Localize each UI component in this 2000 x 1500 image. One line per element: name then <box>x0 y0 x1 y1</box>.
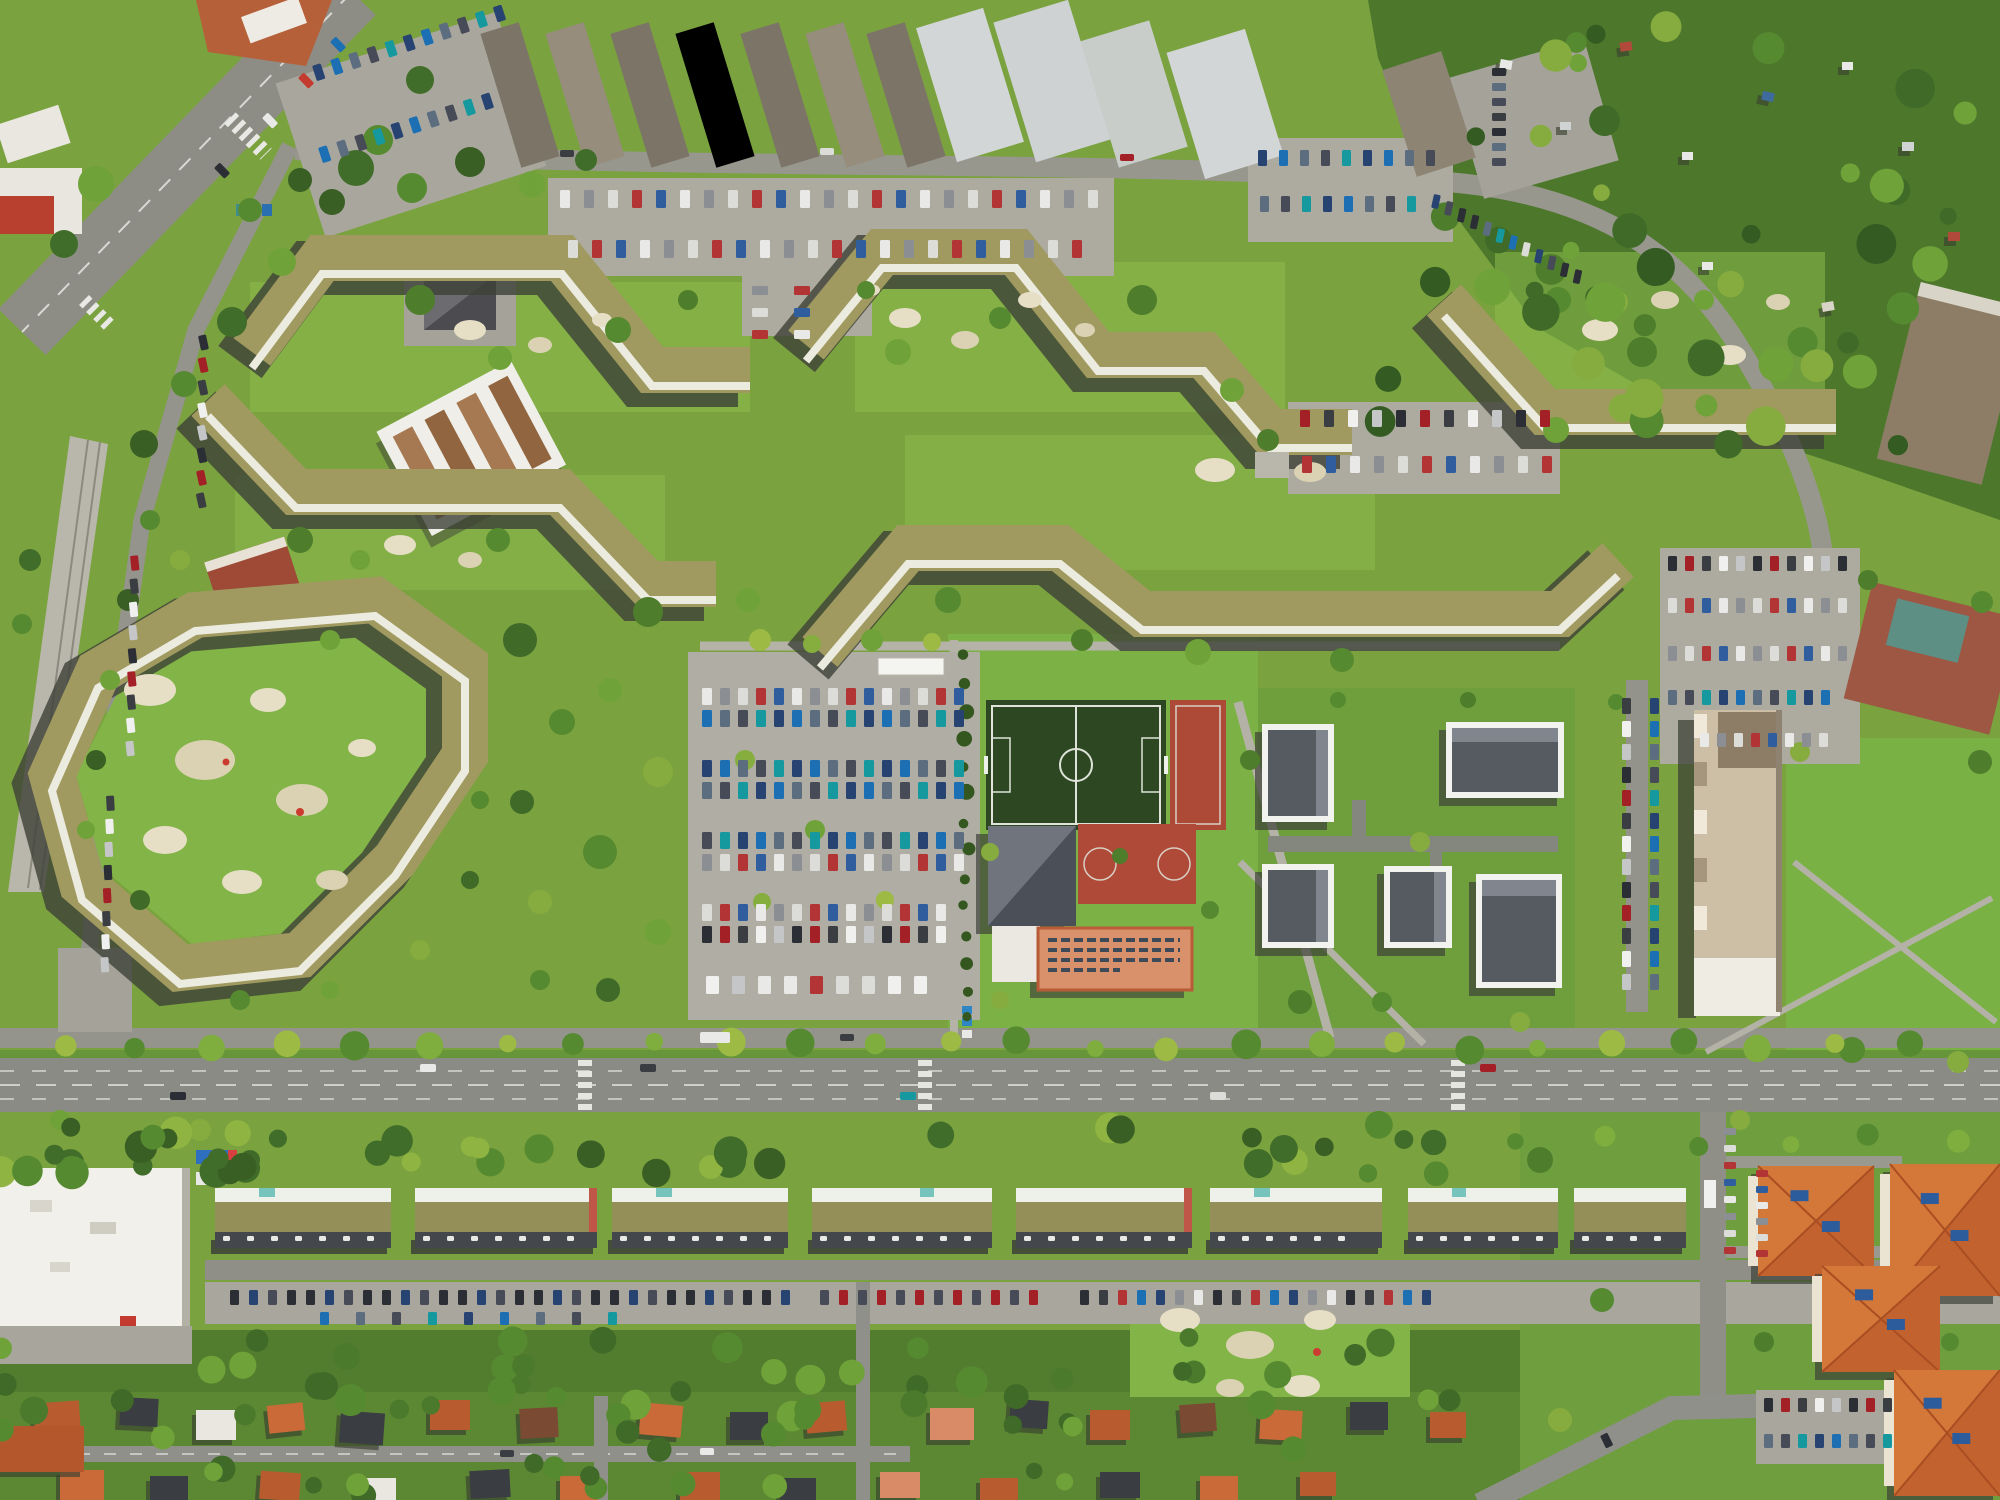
car <box>743 1290 752 1305</box>
avenue-tree-south <box>1242 1128 1262 1148</box>
estate-street <box>205 1260 2000 1280</box>
car <box>1702 690 1711 705</box>
house <box>259 1471 301 1500</box>
car <box>1024 240 1034 258</box>
car <box>1000 240 1010 258</box>
tree <box>528 890 552 914</box>
car <box>1717 733 1726 747</box>
parked-cars <box>794 286 810 339</box>
tree <box>643 757 673 787</box>
car <box>363 1290 372 1305</box>
car <box>756 904 766 921</box>
car <box>1756 1186 1768 1193</box>
tree <box>320 630 340 650</box>
solar-panel <box>1924 1398 1942 1409</box>
avenue-tree-north <box>198 1035 224 1061</box>
car <box>127 694 137 710</box>
tree <box>1220 378 1244 402</box>
car <box>954 782 964 799</box>
car <box>1787 556 1796 571</box>
tree <box>885 339 911 365</box>
car <box>1724 1145 1736 1152</box>
avenue-tree-south <box>402 1153 421 1172</box>
house-district-tree <box>305 1477 322 1494</box>
allotment-tree <box>1759 347 1794 382</box>
car <box>1724 1230 1736 1237</box>
car <box>954 832 964 849</box>
garden-tree <box>956 1366 988 1398</box>
avenue-tree-north <box>1384 1032 1405 1053</box>
tree <box>1527 1147 1553 1173</box>
car <box>572 1312 581 1325</box>
car <box>1622 928 1631 944</box>
car <box>740 1236 747 1241</box>
tree <box>1257 429 1279 451</box>
car <box>968 190 978 208</box>
avenue-tree-south <box>577 1140 605 1168</box>
garden-tree <box>234 1404 256 1426</box>
car <box>918 688 928 705</box>
car <box>1606 1236 1613 1241</box>
car <box>103 888 112 903</box>
sand-patch <box>250 688 286 712</box>
car <box>864 904 874 921</box>
avenue-tree-north <box>1231 1030 1261 1060</box>
tree <box>406 66 434 94</box>
allotment-tree <box>1753 32 1785 64</box>
car <box>271 1236 278 1241</box>
car <box>720 904 730 921</box>
car <box>553 1290 562 1305</box>
car <box>1650 767 1659 783</box>
car <box>810 854 820 871</box>
car <box>1279 150 1288 166</box>
tree <box>171 371 197 397</box>
car <box>1048 1236 1055 1241</box>
garden-tree <box>1173 1362 1192 1381</box>
car <box>688 240 698 258</box>
car <box>1838 598 1847 613</box>
car <box>882 688 892 705</box>
tree <box>923 633 941 651</box>
car <box>720 760 730 777</box>
car <box>824 190 834 208</box>
car <box>1719 646 1728 661</box>
avenue-tree-north <box>1743 1035 1771 1063</box>
car <box>781 1290 790 1305</box>
supermarket <box>0 1168 186 1326</box>
moving-car <box>1120 154 1134 161</box>
car <box>1342 150 1351 166</box>
tree <box>321 981 339 999</box>
car <box>706 976 719 994</box>
tree <box>50 230 78 258</box>
car <box>130 555 140 571</box>
tree <box>461 871 479 889</box>
car <box>856 240 866 258</box>
car <box>367 1236 374 1241</box>
car <box>774 854 784 871</box>
allotment-tree <box>1837 332 1859 354</box>
parked-cars <box>1258 150 1435 166</box>
car <box>792 854 802 871</box>
parked-cars <box>702 760 964 777</box>
tree <box>77 821 95 839</box>
car <box>792 710 802 727</box>
car <box>620 1236 627 1241</box>
avenue-tree-south <box>12 1156 43 1187</box>
car <box>102 911 111 926</box>
car <box>976 240 986 258</box>
car <box>1804 598 1813 613</box>
car <box>877 1290 886 1305</box>
west-building-red-roof <box>0 196 54 234</box>
car <box>1622 859 1631 875</box>
car <box>720 782 730 799</box>
moving-car <box>420 1064 436 1072</box>
car <box>1492 143 1506 151</box>
car <box>794 308 810 317</box>
east-lawn <box>1786 738 2000 1072</box>
avenue-tree-south <box>1107 1115 1135 1143</box>
allotment-tree <box>1801 349 1834 382</box>
avenue-tree-south <box>1244 1149 1273 1178</box>
car <box>1785 733 1794 747</box>
house-district-tree <box>616 1420 639 1443</box>
avenue-tree-south <box>269 1130 287 1148</box>
car <box>1832 1434 1841 1448</box>
car <box>828 904 838 921</box>
parked-cars <box>702 710 964 727</box>
parked-vans <box>706 976 927 994</box>
car <box>928 240 938 258</box>
car <box>1494 456 1504 473</box>
car <box>1403 1290 1412 1305</box>
car <box>1753 598 1762 613</box>
sand-patch <box>316 870 348 890</box>
car <box>784 976 797 994</box>
avenue-tree-south <box>61 1118 80 1137</box>
sand-patch <box>1582 319 1618 341</box>
sand-patch <box>384 535 416 555</box>
car <box>944 190 954 208</box>
car <box>1302 456 1312 473</box>
car <box>1072 1236 1079 1241</box>
house <box>1090 1410 1130 1440</box>
car <box>758 976 771 994</box>
car <box>1024 1236 1031 1241</box>
car <box>702 688 712 705</box>
car <box>862 976 875 994</box>
car <box>756 688 766 705</box>
car <box>127 671 137 687</box>
car <box>1700 733 1709 747</box>
car <box>1324 410 1334 427</box>
house <box>1179 1403 1217 1433</box>
car <box>1798 1398 1807 1412</box>
avenue-tree-south <box>524 1134 553 1163</box>
car <box>1321 150 1330 166</box>
tree <box>130 430 158 458</box>
parked-cars <box>752 286 768 339</box>
house-district-tree <box>647 1437 671 1461</box>
car <box>1702 598 1711 613</box>
campus-corridor <box>1352 800 1366 840</box>
car <box>1260 196 1269 212</box>
car <box>764 1236 771 1241</box>
car <box>738 710 748 727</box>
car <box>268 1290 277 1305</box>
car <box>1770 598 1779 613</box>
car <box>810 904 820 921</box>
car <box>792 760 802 777</box>
car <box>828 782 838 799</box>
car <box>846 710 856 727</box>
allotment-tree <box>1563 242 1580 259</box>
allotment-tree <box>1586 25 1605 44</box>
car <box>1804 556 1813 571</box>
garden-tree <box>229 1352 256 1379</box>
car <box>776 190 786 208</box>
solar-panel <box>1921 1193 1939 1204</box>
car <box>918 926 928 943</box>
sand-patch <box>1226 1331 1274 1359</box>
car <box>952 240 962 258</box>
car <box>792 832 802 849</box>
garden-tree <box>422 1396 440 1414</box>
car <box>644 1236 651 1241</box>
car <box>720 832 730 849</box>
car <box>882 926 892 943</box>
car <box>738 782 748 799</box>
car <box>882 832 892 849</box>
car <box>1622 882 1631 898</box>
house <box>1100 1472 1140 1498</box>
car <box>1536 1236 1543 1241</box>
car <box>792 688 802 705</box>
playground-equipment <box>1313 1348 1321 1356</box>
sand-patch <box>951 331 979 349</box>
hedge-bush <box>962 1012 971 1021</box>
car <box>918 832 928 849</box>
school-block-roof-light <box>1316 730 1328 816</box>
car <box>1326 456 1336 473</box>
car <box>1650 882 1659 898</box>
sand-patch <box>458 552 482 568</box>
dumpster <box>262 204 272 216</box>
tree <box>678 290 698 310</box>
car <box>1270 1290 1279 1305</box>
car <box>1650 928 1659 944</box>
car <box>900 832 910 849</box>
car <box>1802 733 1811 747</box>
avenue-tree-north <box>1825 1034 1844 1053</box>
garden-shed <box>1619 41 1632 52</box>
car <box>900 904 910 921</box>
car <box>1338 1236 1345 1241</box>
car <box>1363 150 1372 166</box>
car <box>794 286 810 295</box>
car <box>1650 813 1659 829</box>
car <box>1756 1234 1768 1241</box>
car <box>1781 1398 1790 1412</box>
house-district-tree <box>346 1473 369 1496</box>
avenue-tree-south <box>44 1145 64 1165</box>
car <box>1768 733 1777 747</box>
estate-block-white-top <box>812 1188 992 1202</box>
car <box>382 1290 391 1305</box>
car <box>900 782 910 799</box>
car <box>680 190 690 208</box>
avenue-tree-south <box>1594 1126 1615 1147</box>
avenue-tree-north <box>274 1030 301 1057</box>
car <box>1540 410 1550 427</box>
car <box>1756 1250 1768 1257</box>
avenue-tree-north <box>786 1029 815 1058</box>
house-district-tree <box>1004 1384 1029 1409</box>
car <box>828 688 838 705</box>
allotment-tree <box>1572 347 1604 379</box>
avenue-tree-north <box>55 1035 76 1056</box>
tree <box>455 147 485 177</box>
car <box>702 782 712 799</box>
car <box>736 240 746 258</box>
car <box>320 1312 329 1325</box>
car <box>720 710 730 727</box>
solar-panel <box>1887 1319 1905 1330</box>
car <box>1650 721 1659 737</box>
car <box>702 760 712 777</box>
car <box>1753 646 1762 661</box>
car <box>1650 836 1659 852</box>
car <box>864 854 874 871</box>
car <box>1685 598 1694 613</box>
garden-tree <box>795 1365 825 1395</box>
goal <box>984 756 988 774</box>
avenue-tree-north <box>340 1031 369 1060</box>
car <box>656 190 666 208</box>
sand-patch <box>1075 323 1095 337</box>
car <box>1175 1290 1184 1305</box>
tree <box>575 149 597 171</box>
car <box>864 926 874 943</box>
car <box>702 854 712 871</box>
avenue-tree-south <box>208 1148 229 1169</box>
car <box>1492 83 1506 91</box>
car <box>608 1312 617 1325</box>
car <box>686 1290 695 1305</box>
house-district-tree <box>1026 1463 1042 1479</box>
car <box>1702 646 1711 661</box>
car <box>918 782 928 799</box>
garden-tree <box>246 1329 269 1352</box>
avenue-tree-north <box>1455 1036 1484 1065</box>
house <box>469 1469 510 1499</box>
car <box>896 1290 905 1305</box>
car <box>1668 556 1677 571</box>
car <box>828 760 838 777</box>
car <box>1080 1290 1089 1305</box>
tree <box>1510 1012 1530 1032</box>
car <box>648 1290 657 1305</box>
car <box>1724 1247 1736 1254</box>
car <box>1137 1290 1146 1305</box>
car <box>774 926 784 943</box>
tree <box>736 588 760 612</box>
car <box>774 710 784 727</box>
tree <box>189 1119 211 1141</box>
car <box>1751 733 1760 747</box>
car <box>1512 1236 1519 1241</box>
car <box>702 926 712 943</box>
car <box>543 1236 550 1241</box>
sand-patch <box>1195 458 1235 482</box>
hedge-bush <box>960 957 973 970</box>
car <box>1821 556 1830 571</box>
car <box>1724 1213 1736 1220</box>
moving-car <box>560 150 574 157</box>
car <box>848 190 858 208</box>
car <box>864 760 874 777</box>
car <box>1384 150 1393 166</box>
avenue-tree-south <box>365 1140 390 1165</box>
car <box>1654 1236 1661 1241</box>
tree <box>1730 1110 1750 1130</box>
tower-edge <box>1776 710 1782 1012</box>
estate-block-face <box>612 1232 788 1248</box>
car <box>792 782 802 799</box>
tree <box>530 970 550 990</box>
garden-tree <box>390 1400 409 1419</box>
car <box>306 1290 315 1305</box>
car <box>1072 240 1082 258</box>
tree <box>596 978 620 1002</box>
car <box>1348 410 1358 427</box>
car <box>810 710 820 727</box>
garden-tree <box>1344 1344 1366 1366</box>
playground-paved <box>1255 452 1289 478</box>
car <box>820 1236 827 1241</box>
car <box>1518 456 1528 473</box>
car <box>632 190 642 208</box>
car <box>664 240 674 258</box>
car <box>1374 456 1384 473</box>
car <box>1440 1236 1447 1241</box>
tree <box>319 189 345 215</box>
avenue-tree-south <box>642 1159 670 1187</box>
car <box>1736 646 1745 661</box>
car <box>249 1290 258 1305</box>
garden-shed <box>1948 232 1960 241</box>
car <box>1016 190 1026 208</box>
tree <box>1185 639 1211 665</box>
car <box>752 330 768 339</box>
car <box>846 760 856 777</box>
car <box>900 760 910 777</box>
car <box>1156 1290 1165 1305</box>
allotment-tree <box>1467 127 1485 145</box>
car <box>567 1236 574 1241</box>
sand-patch <box>143 826 187 854</box>
house-district-tree <box>524 1454 543 1473</box>
tree <box>1240 750 1260 770</box>
allotment-tree <box>1651 11 1682 42</box>
car <box>125 741 135 757</box>
median-green <box>0 1050 2000 1058</box>
garden-tree <box>334 1384 366 1416</box>
supermarket-apron <box>0 1326 192 1364</box>
allotment-tree <box>1522 293 1559 330</box>
